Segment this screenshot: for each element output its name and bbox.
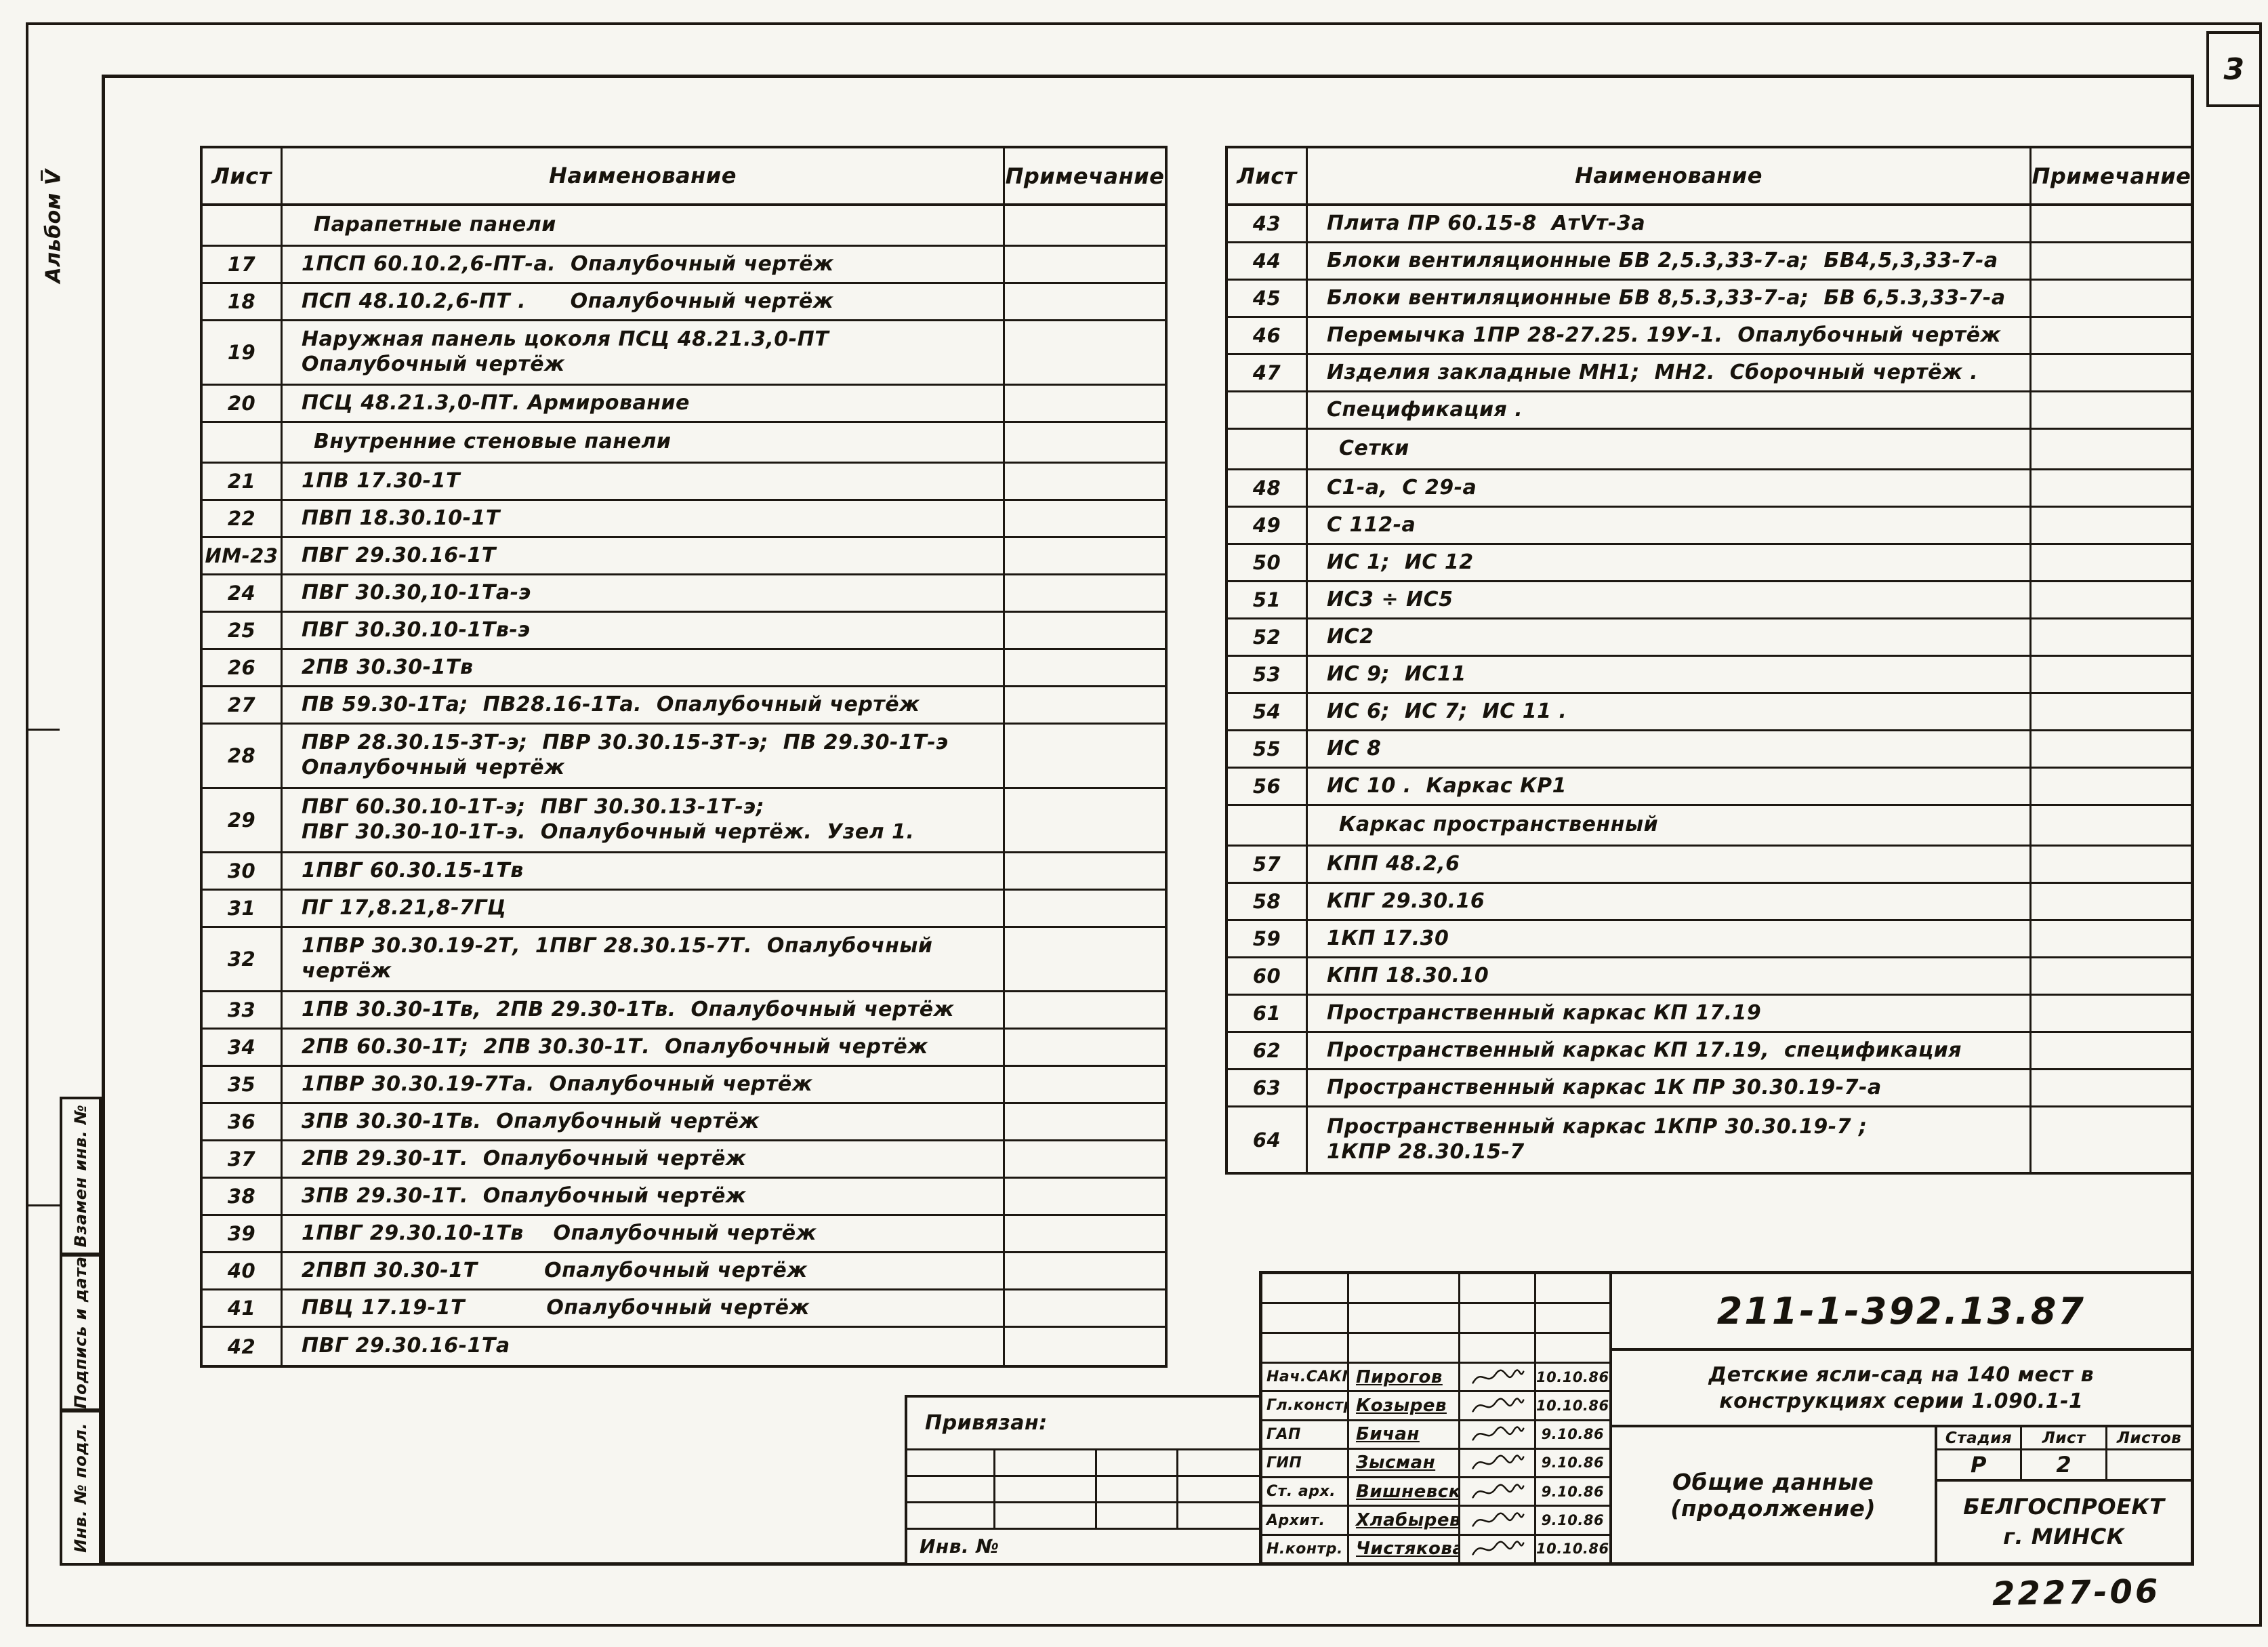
note-cell [2032,847,2191,882]
sheet-index-table-left: Лист Наименование Примечание Парапетные … [200,146,1168,1368]
sheet-row: 57КПП 48.2,6 [1228,847,2191,884]
item-name: КПП 48.2,6 [1308,847,2032,882]
stamp-box-signature-date: Подпись и дата [60,1254,102,1411]
sheet-number: 19 [203,321,283,384]
sheet-number: 43 [1228,206,1308,241]
sheet-row: 61Пространственный каркас КП 17.19 [1228,996,2191,1033]
sheet-number: 28 [203,725,283,787]
item-name: Наружная панель цоколя ПСЦ 48.21.3,0-ПТО… [283,321,1005,384]
item-name: ИС 10 . Каркас КР1 [1308,769,2032,804]
section-row: Сетки [1228,430,2191,470]
note-cell [1005,575,1165,611]
album-label: Альбом V̅ [42,135,66,318]
binding-label: Привязан: [907,1398,1259,1450]
sheet-number: 21 [203,464,283,499]
note-cell [1005,423,1165,462]
note-cell [2032,921,2191,956]
item-name: ПВГ 29.30.16-1Т [283,538,1005,573]
sheet-row: 47Изделия закладные МН1; МН2. Сборочный … [1228,355,2191,392]
fold-mark [26,1204,60,1206]
project-title-line: конструкциях серии 1.090.1-1 [1719,1388,2083,1415]
sheet-number: 33 [203,992,283,1028]
note-cell [1005,992,1165,1028]
sheet-number: 38 [203,1179,283,1214]
sheet-row: 28ПВР 28.30.15-3Т-э; ПВР 30.30.15-3Т-э; … [203,725,1165,789]
note-cell [2032,206,2191,241]
sheet-number: 22 [203,501,283,536]
item-name: Плита ПР 60.15-8 АтVт-3а [1308,206,2032,241]
sheet-row: 19Наружная панель цоколя ПСЦ 48.21.3,0-П… [203,321,1165,386]
sheet-number: 62 [1228,1033,1308,1068]
item-name: 1ПВР 30.30.19-7Та. Опалубочный чертёж [283,1067,1005,1102]
item-name: ПВГ 29.30.16-1Та [283,1328,1005,1365]
item-name: 2ПВ 60.30-1Т; 2ПВ 30.30-1Т. Опалубочный … [283,1030,1005,1065]
sheet-number: 37 [203,1141,283,1177]
item-name: 1ПВГ 29.30.10-1Тв Опалубочный чертёж [283,1216,1005,1251]
signature-row: Гл.констр. Козырев 10.10.86 [1262,1392,1609,1421]
note-cell [2032,281,2191,316]
sheets-value [2107,1450,2191,1479]
signer-role: Ст. арх. [1262,1478,1349,1505]
signer-role: Гл.констр. [1262,1392,1349,1419]
sheet-number: 64 [1228,1107,1308,1172]
item-name: 1ПВР 30.30.19-2Т, 1ПВГ 28.30.15-7Т. Опал… [283,928,1005,990]
section-title: Внутренние стеновые панели [283,423,1005,462]
item-name: 1ПВ 17.30-1Т [283,464,1005,499]
sheet-number: 46 [1228,318,1308,353]
item-name: Пространственный каркас 1КПР 30.30.19-7 … [1308,1107,2032,1172]
note-cell [1005,1179,1165,1214]
stamp-label: Подпись и дата [71,1257,90,1409]
item-name: ПВ 59.30-1Та; ПВ28.16-1Та. Опалубочный ч… [283,687,1005,723]
grid-cell [907,1503,995,1530]
sheet-row: 211ПВ 17.30-1Т [203,464,1165,501]
sheet-row: 383ПВ 29.30-1Т. Опалубочный чертёж [203,1179,1165,1216]
grid-cell [1097,1503,1178,1530]
note-cell [2032,1107,2191,1172]
sheet-row: 22ПВП 18.30.10-1Т [203,501,1165,538]
sheet-row: 53ИС 9; ИС11 [1228,657,2191,694]
header-name: Наименование [1308,148,2032,203]
sheet-number: 55 [1228,731,1308,767]
sheet-row: 52ИС2 [1228,619,2191,657]
sheet-value: 2 [2022,1450,2107,1479]
item-name: 2ПВ 29.30-1Т. Опалубочный чертёж [283,1141,1005,1177]
signature-rows: Нач.САКМ Пирогов 10.10.86 Гл.констр. Коз… [1262,1364,1609,1562]
sheet-number: 20 [203,386,283,421]
signature-row: ГАП Бичан 9.10.86 [1262,1421,1609,1450]
item-name: ИС 6; ИС 7; ИС 11 . [1308,694,2032,729]
outer-border-bottom [26,1624,2262,1627]
note-cell [2032,545,2191,580]
note-cell [2032,769,2191,804]
item-name: 2ПВП 30.30-1Т Опалубочный чертёж [283,1253,1005,1288]
sheet-number: 17 [203,247,283,282]
signature-date: 9.10.86 [1536,1478,1609,1505]
note-cell [2032,996,2191,1031]
grid-cell [1178,1477,1259,1503]
signature-date: 10.10.86 [1536,1536,1609,1562]
note-cell [2032,731,2191,767]
sheet-row: 25ПВГ 30.30.10-1Тв-э [203,613,1165,650]
note-cell [2032,619,2191,655]
empty-revision-row [1262,1304,1609,1334]
signature-row: Ст. арх. Вишневская 9.10.86 [1262,1478,1609,1507]
section-title: Парапетные панели [283,206,1005,245]
sheet-number [1228,430,1308,468]
item-name: ПВП 18.30.10-1Т [283,501,1005,536]
signer-name: Чистякова [1349,1536,1460,1562]
item-name: 1КП 17.30 [1308,921,2032,956]
note-cell [1005,613,1165,648]
project-title: Детские ясли-сад на 140 мест в конструкц… [1612,1351,2191,1427]
signature-row: ГИП Зысман 9.10.86 [1262,1450,1609,1478]
sheet-title: Общие данные (продолжение) [1612,1427,1937,1562]
signature-date: 9.10.86 [1536,1450,1609,1476]
sheet-number: 45 [1228,281,1308,316]
sheet-number: 60 [1228,958,1308,994]
sheet-number: 39 [203,1216,283,1251]
grid-cell [995,1477,1097,1503]
signer-name: Бичан [1349,1421,1460,1448]
header-sheet: Лист [1228,148,1308,203]
title-block: Нач.САКМ Пирогов 10.10.86 Гл.констр. Коз… [1259,1271,2194,1566]
signer-role: Архит. [1262,1507,1349,1533]
note-cell [1005,538,1165,573]
signature-date: 10.10.86 [1536,1392,1609,1419]
sheet-row: 402ПВП 30.30-1Т Опалубочный чертёж [203,1253,1165,1290]
item-name: Спецификация . [1308,392,2032,428]
signature-row: Н.контр. Чистякова 10.10.86 [1262,1536,1609,1562]
organization: БЕЛГОСПРОЕКТ г. МИНСК [1937,1482,2191,1562]
grid-cell [907,1450,995,1477]
item-name: 1ПВ 30.30-1Тв, 2ПВ 29.30-1Тв. Опалубочны… [283,992,1005,1028]
document-number: 211-1-392.13.87 [1612,1274,2191,1351]
sheet-number: 25 [203,613,283,648]
note-cell [2032,958,2191,994]
note-cell [1005,501,1165,536]
section-row: Каркас пространственный [1228,806,2191,847]
note-cell [2032,430,2191,468]
item-name: КПП 18.30.10 [1308,958,2032,994]
sheet-number: ИМ-23 [203,538,283,573]
item-name: ИС 9; ИС11 [1308,657,2032,692]
sheet-number [1228,392,1308,428]
sheet-number: 30 [203,853,283,889]
sheet-row: 351ПВР 30.30.19-7Та. Опалубочный чертёж [203,1067,1165,1104]
header-name: Наименование [283,148,1005,203]
sheet-number: 56 [1228,769,1308,804]
sheet-row: 60КПП 18.30.10 [1228,958,2191,996]
grid-cell [1097,1477,1178,1503]
sheet-number: 41 [203,1290,283,1326]
sheet-row: 391ПВГ 29.30.10-1Тв Опалубочный чертёж [203,1216,1165,1253]
signature-scribble [1460,1364,1536,1390]
note-cell [1005,789,1165,851]
item-name: Пространственный каркас КП 17.19 [1308,996,2032,1031]
signer-role: Нач.САКМ [1262,1364,1349,1390]
binding-grid [907,1450,1259,1530]
title-lower-area: Общие данные (продолжение) Стадия Лист Л… [1612,1427,2191,1562]
sheet-number: 52 [1228,619,1308,655]
stamp-box-replaced-inv: Взамен инв. № [60,1097,102,1255]
sheet-row: 43Плита ПР 60.15-8 АтVт-3а [1228,206,2191,243]
item-name: ПВГ 30.30.10-1Тв-э [283,613,1005,648]
sheet-number: 31 [203,891,283,926]
inventory-number-label: Инв. № [907,1530,1259,1563]
sheet-number: 29 [203,789,283,851]
section-row: Парапетные панели [203,206,1165,247]
sheet-number: 63 [1228,1070,1308,1105]
item-name: КПГ 29.30.16 [1308,884,2032,919]
sheet-row: 45Блоки вентиляционные БВ 8,5.3,33-7-а; … [1228,281,2191,318]
sheet-row: Спецификация . [1228,392,2191,430]
signature-scribble [1460,1392,1536,1419]
sheet-number: 61 [1228,996,1308,1031]
sheet-label: Лист [2022,1427,2107,1448]
item-name: ИС 8 [1308,731,2032,767]
sheet-number: 24 [203,575,283,611]
signature-scribble [1460,1421,1536,1448]
note-cell [1005,247,1165,282]
fold-mark [26,729,60,731]
note-cell [2032,470,2191,506]
sheet-number: 57 [1228,847,1308,882]
stamp-label: Инв. № подл. [71,1423,90,1553]
sheet-number: 27 [203,687,283,723]
sheet-index-table-right: Лист Наименование Примечание 43Плита ПР … [1225,146,2194,1175]
stamp-label: Взамен инв. № [71,1105,90,1248]
sheet-row: 50ИС 1; ИС 12 [1228,545,2191,582]
header-note: Примечание [2032,148,2191,203]
item-name: Блоки вентиляционные БВ 2,5.3,33-7-а; БВ… [1308,243,2032,279]
note-cell [1005,206,1165,245]
sheet-number: 34 [203,1030,283,1065]
sheet-number: 44 [1228,243,1308,279]
grid-cell [1097,1450,1178,1477]
note-cell [1005,687,1165,723]
header-note: Примечание [1005,148,1165,203]
sheet-row: 171ПСП 60.10.2,6-ПТ-а. Опалубочный чертё… [203,247,1165,284]
table-header: Лист Наименование Примечание [203,148,1165,206]
signature-scribble [1460,1478,1536,1505]
sheet-number: 18 [203,284,283,319]
section-title: Сетки [1308,430,2032,468]
signer-role: ГИП [1262,1450,1349,1476]
note-cell [2032,508,2191,543]
header-sheet: Лист [203,148,283,203]
stage-grid: Стадия Лист Листов Р 2 БЕЛГОСПРОЕКТ г. М… [1937,1427,2191,1562]
signature-row: Нач.САКМ Пирогов 10.10.86 [1262,1364,1609,1392]
note-cell [2032,806,2191,845]
signature-date: 9.10.86 [1536,1507,1609,1533]
note-cell [1005,1104,1165,1139]
note-cell [1005,853,1165,889]
note-cell [2032,392,2191,428]
note-cell [2032,582,2191,617]
sheet-row: 591КП 17.30 [1228,921,2191,958]
sheet-row: 29ПВГ 60.30.10-1Т-э; ПВГ 30.30.13-1Т-э;П… [203,789,1165,853]
page-number-box: 3 [2206,31,2262,107]
sheet-row: 262ПВ 30.30-1Тв [203,650,1165,687]
sheet-number [203,206,283,245]
stage-header-row: Стадия Лист Листов [1937,1427,2191,1450]
item-name: 3ПВ 29.30-1Т. Опалубочный чертёж [283,1179,1005,1214]
title-column: 211-1-392.13.87 Детские ясли-сад на 140 … [1612,1274,2191,1562]
sheet-row: 63Пространственный каркас 1К ПР 30.30.19… [1228,1070,2191,1107]
signer-role: Н.контр. [1262,1536,1349,1562]
grid-cell [1178,1503,1259,1530]
sheet-number: 53 [1228,657,1308,692]
outer-border-right [2259,22,2262,1627]
item-name: ИС3 ÷ ИС5 [1308,582,2032,617]
sheet-number: 50 [1228,545,1308,580]
sheet-row: 321ПВР 30.30.19-2Т, 1ПВГ 28.30.15-7Т. Оп… [203,928,1165,992]
grid-cell [907,1477,995,1503]
sheet-number [203,423,283,462]
binding-block: Привязан: Инв. № [905,1395,1262,1566]
sheet-row: 41ПВЦ 17.19-1Т Опалубочный чертёж [203,1290,1165,1328]
sheet-number: 42 [203,1328,283,1365]
note-cell [1005,1141,1165,1177]
note-cell [1005,1253,1165,1288]
sheet-number: 54 [1228,694,1308,729]
grid-cell [995,1503,1097,1530]
section-row: Внутренние стеновые панели [203,423,1165,464]
note-cell [1005,284,1165,319]
stamp-box-inv-original: Инв. № подл. [60,1410,102,1566]
section-title: Каркас пространственный [1308,806,2032,845]
table-header: Лист Наименование Примечание [1228,148,2191,206]
signature-scribble [1460,1507,1536,1533]
sheet-number: 35 [203,1067,283,1102]
sheet-number: 32 [203,928,283,990]
signature-date: 10.10.86 [1536,1364,1609,1390]
grid-cell [995,1450,1097,1477]
sheet-row: 31ПГ 17,8.21,8-7ГЦ [203,891,1165,928]
item-name: ПВР 28.30.15-3Т-э; ПВР 30.30.15-3Т-э; ПВ… [283,725,1005,787]
item-name: Пространственный каркас 1К ПР 30.30.19-7… [1308,1070,2032,1105]
sheet-number: 40 [203,1253,283,1288]
note-cell [1005,464,1165,499]
sheet-row: 54ИС 6; ИС 7; ИС 11 . [1228,694,2191,731]
sheet-row: 42ПВГ 29.30.16-1Та [203,1328,1165,1365]
item-name: ИС2 [1308,619,2032,655]
sheet-row: 48С1-а, С 29-а [1228,470,2191,508]
item-name: ПСЦ 48.21.3,0-ПТ. Армирование [283,386,1005,421]
sheet-number: 36 [203,1104,283,1139]
signatures-column: Нач.САКМ Пирогов 10.10.86 Гл.констр. Коз… [1262,1274,1612,1562]
sheet-row: 342ПВ 60.30-1Т; 2ПВ 30.30-1Т. Опалубочны… [203,1030,1165,1067]
item-name: С1-а, С 29-а [1308,470,2032,506]
sheet-row: 49С 112-а [1228,508,2191,545]
stage-value: Р [1937,1450,2023,1479]
sheet-row: 331ПВ 30.30-1Тв, 2ПВ 29.30-1Тв. Опалубоч… [203,992,1165,1030]
stage-label: Стадия [1937,1427,2023,1448]
note-cell [1005,891,1165,926]
sheet-number: 26 [203,650,283,685]
item-name: ПСП 48.10.2,6-ПТ . Опалубочный чертёж [283,284,1005,319]
sheet-row: 55ИС 8 [1228,731,2191,769]
sheet-row: 51ИС3 ÷ ИС5 [1228,582,2191,619]
sheet-number [1228,806,1308,845]
sheet-row: 56ИС 10 . Каркас КР1 [1228,769,2191,806]
page-number: 3 [2223,52,2244,87]
signature-date: 9.10.86 [1536,1421,1609,1448]
sheet-row: 64Пространственный каркас 1КПР 30.30.19-… [1228,1107,2191,1172]
note-cell [2032,657,2191,692]
signer-name: Козырев [1349,1392,1460,1419]
empty-revision-row [1262,1334,1609,1364]
sheet-row: 58КПГ 29.30.16 [1228,884,2191,921]
signer-role: ГАП [1262,1421,1349,1448]
sheet-row: 363ПВ 30.30-1Тв. Опалубочный чертёж [203,1104,1165,1141]
sheet-number: 47 [1228,355,1308,390]
note-cell [1005,650,1165,685]
signer-name: Пирогов [1349,1364,1460,1390]
sheet-row: 62Пространственный каркас КП 17.19, спец… [1228,1033,2191,1070]
note-cell [1005,1030,1165,1065]
sheet-row: 20ПСЦ 48.21.3,0-ПТ. Армирование [203,386,1165,423]
sheet-number: 48 [1228,470,1308,506]
note-cell [2032,1033,2191,1068]
signer-name: Зысман [1349,1450,1460,1476]
signature-row: Архит. Хлабырева 9.10.86 [1262,1507,1609,1535]
note-cell [1005,386,1165,421]
note-cell [2032,318,2191,353]
archive-number: 2227-06 [1992,1572,2161,1613]
note-cell [1005,1067,1165,1102]
note-cell [1005,1216,1165,1251]
sheet-row: 372ПВ 29.30-1Т. Опалубочный чертёж [203,1141,1165,1179]
item-name: ПГ 17,8.21,8-7ГЦ [283,891,1005,926]
note-cell [2032,694,2191,729]
stage-value-row: Р 2 [1937,1450,2191,1482]
grid-cell [1178,1450,1259,1477]
note-cell [1005,725,1165,787]
item-name: ПВЦ 17.19-1Т Опалубочный чертёж [283,1290,1005,1326]
item-name: 1ПСП 60.10.2,6-ПТ-а. Опалубочный чертёж [283,247,1005,282]
sheet-row: 301ПВГ 60.30.15-1Тв [203,853,1165,891]
sheets-label: Листов [2107,1427,2191,1448]
note-cell [2032,1070,2191,1105]
organization-city: г. МИНСК [2003,1522,2124,1551]
outer-border-left [26,22,28,1627]
note-cell [1005,1290,1165,1326]
sheet-row: 24ПВГ 30.30,10-1Та-э [203,575,1165,613]
note-cell [2032,884,2191,919]
signer-name: Вишневская [1349,1478,1460,1505]
item-name: Пространственный каркас КП 17.19, специф… [1308,1033,2032,1068]
signer-name: Хлабырева [1349,1507,1460,1533]
sheet-number: 49 [1228,508,1308,543]
note-cell [2032,243,2191,279]
project-title-line: Детские ясли-сад на 140 мест в [1709,1362,2095,1388]
sheet-row: 46Перемычка 1ПР 28-27.25. 19У-1. Опалубо… [1228,318,2191,355]
item-name: 2ПВ 30.30-1Тв [283,650,1005,685]
sheet-number: 58 [1228,884,1308,919]
item-name: Перемычка 1ПР 28-27.25. 19У-1. Опалубочн… [1308,318,2032,353]
note-cell [2032,355,2191,390]
sheet-row: ИМ-23ПВГ 29.30.16-1Т [203,538,1165,575]
signature-scribble [1460,1536,1536,1562]
item-name: ПВГ 60.30.10-1Т-э; ПВГ 30.30.13-1Т-э;ПВГ… [283,789,1005,851]
sheet-row: 27ПВ 59.30-1Та; ПВ28.16-1Та. Опалубочный… [203,687,1165,725]
item-name: 1ПВГ 60.30.15-1Тв [283,853,1005,889]
note-cell [1005,928,1165,990]
item-name: Блоки вентиляционные БВ 8,5.3,33-7-а; БВ… [1308,281,2032,316]
item-name: ИС 1; ИС 12 [1308,545,2032,580]
